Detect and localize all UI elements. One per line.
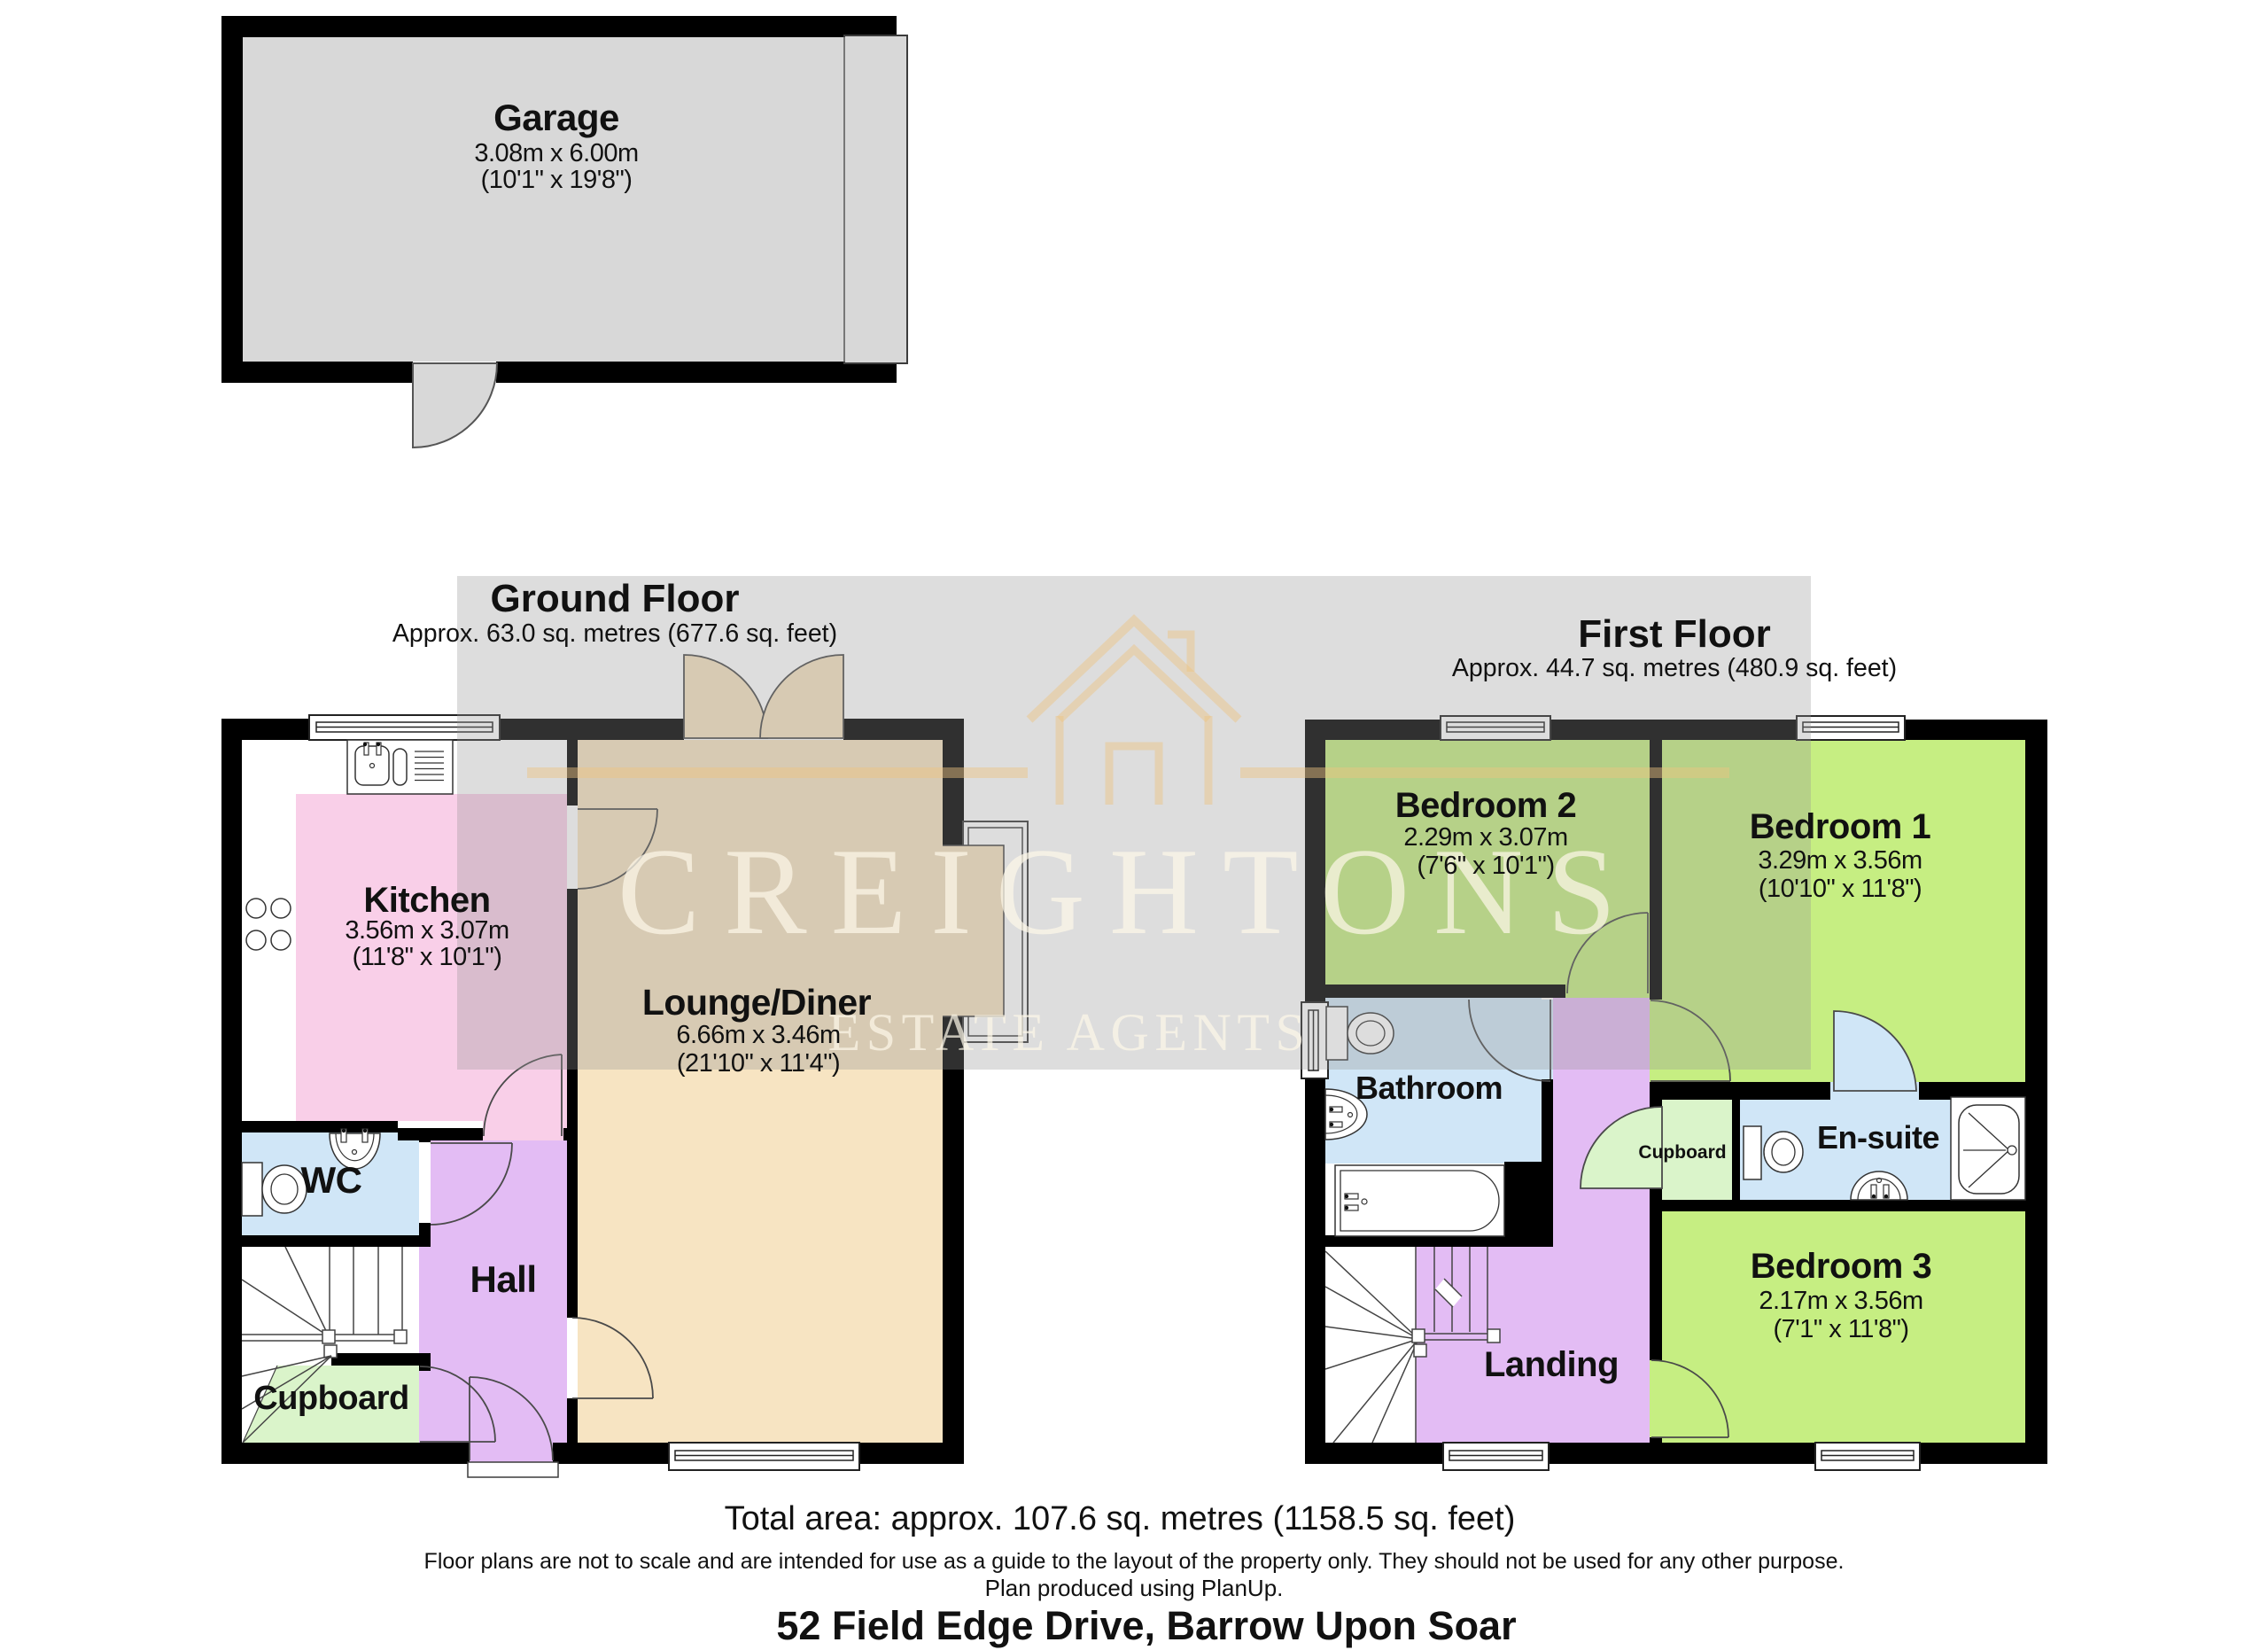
svg-text:Lounge/Diner: Lounge/Diner: [642, 982, 872, 1023]
svg-text:Cupboard: Cupboard: [253, 1380, 408, 1417]
svg-text:First Floor: First Floor: [1578, 612, 1771, 656]
svg-text:Bathroom: Bathroom: [1355, 1070, 1503, 1106]
svg-text:3.08m x 6.00m: 3.08m x 6.00m: [474, 139, 638, 167]
svg-text:WC: WC: [301, 1159, 362, 1201]
svg-text:(21'10" x 11'4"): (21'10" x 11'4"): [677, 1049, 840, 1078]
svg-text:3.29m x 3.56m: 3.29m x 3.56m: [1758, 846, 1922, 875]
svg-text:(7'6" x 10'1"): (7'6" x 10'1"): [1417, 852, 1554, 880]
svg-text:Bedroom 3: Bedroom 3: [1751, 1247, 1931, 1286]
svg-text:2.17m x 3.56m: 2.17m x 3.56m: [1759, 1287, 1922, 1315]
svg-text:2.29m x 3.07m: 2.29m x 3.07m: [1403, 823, 1567, 852]
svg-text:(10'10" x 11'8"): (10'10" x 11'8"): [1759, 875, 1922, 903]
svg-text:Approx. 44.7 sq. metres (480.9: Approx. 44.7 sq. metres (480.9 sq. feet): [1452, 654, 1897, 682]
svg-text:(10'1" x 19'8"): (10'1" x 19'8"): [481, 166, 633, 194]
svg-text:(7'1" x 11'8"): (7'1" x 11'8"): [1773, 1315, 1908, 1343]
svg-text:3.56m x 3.07m: 3.56m x 3.07m: [345, 916, 509, 945]
svg-text:Approx. 63.0 sq. metres (677.6: Approx. 63.0 sq. metres (677.6 sq. feet): [392, 619, 837, 648]
svg-text:(11'8" x 10'1"): (11'8" x 10'1"): [353, 943, 502, 971]
svg-text:Garage: Garage: [493, 97, 619, 138]
svg-text:Ground Floor: Ground Floor: [490, 577, 739, 620]
svg-text:ESTATE AGENTS: ESTATE AGENTS: [828, 1003, 1311, 1062]
svg-text:Floor plans are not to scale a: Floor plans are not to scale and are int…: [424, 1549, 1845, 1574]
svg-text:Plan produced using PlanUp.: Plan produced using PlanUp.: [985, 1575, 1284, 1601]
svg-text:Hall: Hall: [470, 1258, 536, 1300]
svg-text:Landing: Landing: [1484, 1345, 1619, 1384]
svg-text:Bedroom 1: Bedroom 1: [1750, 807, 1931, 846]
svg-text:Total area: approx. 107.6 sq.: Total area: approx. 107.6 sq. metres (11…: [725, 1500, 1516, 1537]
svg-text:52 Field Edge Drive, Barrow Up: 52 Field Edge Drive, Barrow Upon Soar: [776, 1603, 1516, 1648]
svg-text:Kitchen: Kitchen: [363, 881, 490, 920]
svg-text:6.66m x 3.46m: 6.66m x 3.46m: [676, 1021, 840, 1049]
svg-text:Bedroom 2: Bedroom 2: [1395, 786, 1576, 825]
svg-text:Cupboard: Cupboard: [1638, 1142, 1726, 1163]
svg-text:En-suite: En-suite: [1817, 1119, 1939, 1156]
